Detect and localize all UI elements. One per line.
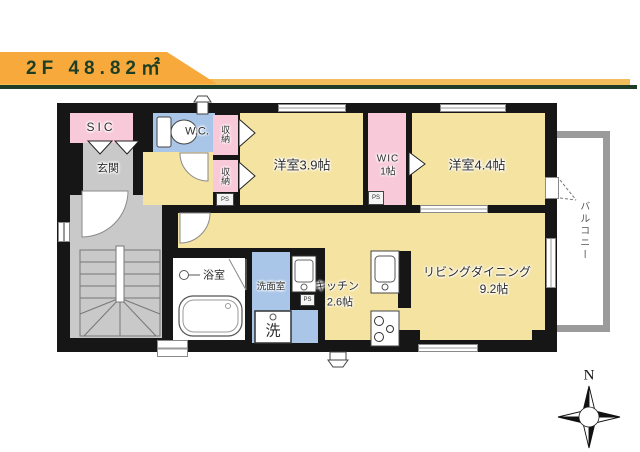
label-washer: 洗 (265, 322, 280, 339)
wc-door-arc-icon (180, 153, 208, 181)
entrance-door-arc-icon (82, 191, 128, 237)
hall-door-arc-icon (180, 213, 210, 243)
label-genkan: 玄関 (97, 163, 119, 176)
vent-bottom-icon (328, 352, 348, 367)
label-sic: SIC (86, 121, 115, 135)
bath-folding-door-icon (229, 259, 246, 290)
folding-door-icon (88, 119, 425, 190)
label-compass-north: N (584, 367, 595, 384)
label-storage-upper: 収納 (220, 125, 230, 143)
label-kitchen: キッチン (315, 281, 359, 294)
balcony-door-swing-icon (560, 180, 576, 200)
label-bedroom39: 洋室3.9帖 (273, 159, 330, 174)
stove-icon (371, 311, 399, 346)
compass-rose-icon (558, 386, 620, 448)
label-bedroom44: 洋室4.4帖 (448, 159, 505, 174)
vanity-sink-icon (292, 256, 316, 292)
label-wc: W.C. (185, 126, 209, 139)
stairs-icon (80, 246, 160, 336)
label-wic: WIC (377, 153, 399, 165)
bathtub-icon (179, 296, 242, 336)
floor-plan-page: 2F 48.82㎡ PS PS PS (0, 0, 640, 452)
bath-faucet-icon (180, 271, 201, 280)
label-living-dining: リビングダイニング (423, 266, 531, 280)
label-kitchen-size: 2.6帖 (327, 297, 353, 310)
label-balcony: バルコニー (577, 201, 589, 261)
label-bathroom: 浴室 (203, 270, 225, 283)
vent-pipe-icon (194, 96, 211, 114)
label-living-dining-size: 9.2帖 (480, 283, 509, 297)
kitchen-sink-icon (371, 251, 399, 293)
label-washroom: 洗面室 (257, 283, 286, 294)
fixtures-layer (0, 0, 640, 452)
label-storage-lower: 収納 (220, 167, 230, 185)
label-wic-size: 1帖 (380, 166, 396, 178)
